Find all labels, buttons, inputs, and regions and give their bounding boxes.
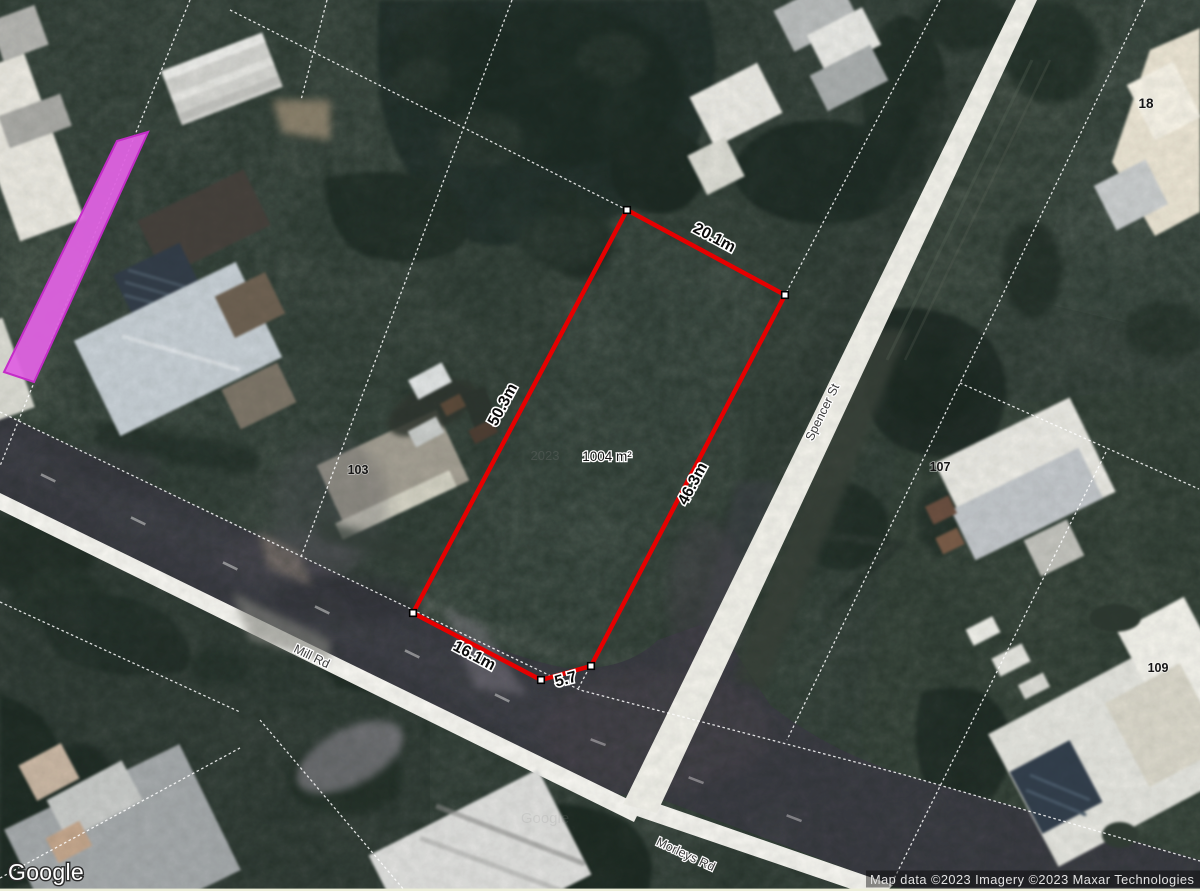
svg-text:1004 m²: 1004 m² xyxy=(582,449,632,464)
svg-text:107: 107 xyxy=(930,460,951,474)
svg-text:Map data ©2023 Imagery ©2023 M: Map data ©2023 Imagery ©2023 Maxar Techn… xyxy=(870,872,1194,887)
svg-text:Google: Google xyxy=(8,859,84,885)
svg-text:2023: 2023 xyxy=(531,448,560,463)
svg-text:Google: Google xyxy=(521,810,569,827)
svg-text:18: 18 xyxy=(1138,96,1154,111)
svg-text:109: 109 xyxy=(1148,661,1169,675)
svg-text:103: 103 xyxy=(348,463,369,477)
